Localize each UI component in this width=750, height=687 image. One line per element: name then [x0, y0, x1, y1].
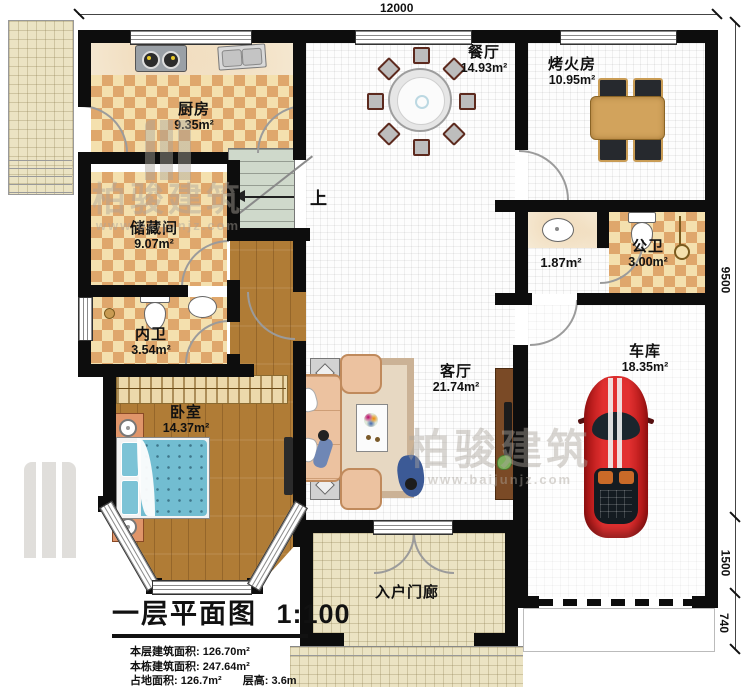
watermark-logo-icon: [24, 462, 76, 558]
plan-scale: 1:100: [277, 599, 351, 629]
dining-window: [355, 30, 472, 45]
room-name: 厨房: [174, 101, 214, 118]
info-label: 本层建筑面积: [130, 646, 196, 658]
wall-innerbath-right-a: [227, 280, 240, 322]
table-items: [366, 435, 371, 440]
label-kitchen: 厨房 9.35m²: [174, 101, 214, 132]
coffee-table: [356, 404, 388, 452]
dim-right-740: 740: [717, 613, 731, 633]
room-area: 1.87m²: [540, 256, 581, 270]
room-area: 21.74m²: [433, 380, 480, 394]
wall-kitchen-right: [293, 30, 306, 160]
plan-title-row: 一层平面图 1:100: [112, 592, 342, 631]
car-stripe: [608, 378, 613, 468]
bedroom-tv: [284, 437, 293, 495]
room-area: 9.35m²: [174, 118, 214, 132]
dining-chair: [413, 139, 430, 156]
burner: [142, 51, 160, 69]
wall-garage-stub-right: [692, 596, 718, 608]
car-seat: [619, 471, 634, 484]
car-engine-lines: [600, 490, 632, 518]
inner-bath-window: [78, 297, 93, 341]
label-living: 客厅 21.74m²: [433, 363, 480, 394]
plant: [497, 455, 512, 470]
car-engine-cover: [594, 468, 638, 524]
room-name: 储藏间: [130, 220, 178, 237]
info-value: 3.6m: [272, 675, 297, 687]
dining-chair: [459, 93, 476, 110]
burner: [162, 51, 180, 69]
wall-porch-stub-right: [474, 633, 518, 646]
flowers: [364, 413, 378, 427]
wall-left-mid: [78, 152, 91, 297]
wall-row-bottom-a: [495, 293, 532, 305]
armchair: [340, 468, 382, 510]
fire-room-window: [560, 30, 677, 45]
alcove-sink-drain: [555, 227, 559, 231]
wall-storage-bottom: [78, 285, 188, 297]
dining-table-center: [415, 95, 429, 109]
room-name: 客厅: [433, 363, 480, 380]
wall-living-south-a: [306, 520, 374, 533]
dining-table-group: [388, 68, 452, 132]
stairs-up-label: 上: [310, 184, 327, 209]
car-windshield: [592, 412, 640, 440]
wall-living-south-b: [451, 520, 513, 533]
info-value: 126.70m²: [203, 646, 250, 658]
label-bedroom: 卧室 14.37m²: [163, 404, 210, 435]
info-lines: 本层建筑面积: 126.70m² 本栋建筑面积: 247.64m² 占地面积: …: [130, 645, 342, 687]
info-value: 247.64m²: [203, 661, 250, 673]
room-name: 餐厅: [461, 44, 508, 61]
wall-kitchen-bottom: [78, 152, 228, 164]
car-seat: [598, 471, 613, 484]
room-area: 3.00m²: [628, 255, 668, 269]
sink-basin: [221, 49, 242, 67]
wall-left-upper: [78, 30, 91, 107]
wall-porch-right: [505, 533, 518, 635]
floor-plan: 上: [0, 0, 750, 687]
label-storage: 储藏间 9.07m²: [130, 220, 178, 251]
wall-bedroom-left: [103, 377, 116, 505]
label-wash-alcove: 1.87m²: [540, 256, 581, 270]
info-label: 层高: [243, 675, 265, 687]
garage-apron: [523, 608, 715, 652]
room-name: 卧室: [163, 404, 210, 421]
armchair: [340, 354, 382, 394]
title-block: 一层平面图 1:100 本层建筑面积: 126.70m² 本栋建筑面积: 247…: [112, 592, 342, 687]
room-area: 14.93m²: [461, 61, 508, 75]
room-area: 10.95m²: [548, 73, 596, 87]
table-items: [375, 437, 380, 442]
room-area: 14.37m²: [163, 421, 210, 435]
terrace-steps: [8, 160, 72, 193]
label-dining: 餐厅 14.93m²: [461, 44, 508, 75]
car-stripe: [617, 378, 622, 468]
entry-door-opening: [373, 520, 453, 535]
info-row: 本栋建筑面积: 247.64m²: [130, 660, 342, 675]
wall-innerbath-bottom: [78, 364, 254, 377]
room-name: 车库: [622, 343, 669, 360]
info-value: 126.7m²: [181, 675, 222, 687]
person-head: [318, 430, 329, 441]
watermark-logo: [24, 462, 88, 558]
room-name: 烤火房: [548, 56, 596, 73]
wall-dining-fire: [515, 30, 528, 150]
room-area: 9.07m²: [130, 237, 178, 251]
burner-flame: [171, 56, 175, 60]
label-inner-bath: 内卫 3.54m²: [131, 326, 171, 357]
inner-bath-sink: [188, 296, 217, 318]
kitchen-sink: [217, 43, 267, 70]
shower-hose: [679, 216, 681, 246]
info-row: 占地面积: 126.7m² 层高: 3.6m: [130, 674, 342, 687]
wardrobe-rod: [116, 388, 286, 389]
car: [578, 376, 654, 540]
room-name: 入户门廊: [375, 584, 439, 601]
pillow: [121, 480, 139, 515]
dim-top: 12000: [380, 1, 413, 15]
wall-bedroom-right-a: [293, 241, 306, 292]
wall-alcove-left: [515, 210, 528, 293]
room-name: 内卫: [131, 326, 171, 343]
plan-title: 一层平面图: [112, 599, 257, 629]
garage-door-dashed: [539, 599, 692, 606]
info-label: 占地面积: [130, 675, 174, 687]
room-name: 公卫: [628, 238, 668, 255]
label-fire-room: 烤火房 10.95m²: [548, 56, 596, 87]
wardrobe: [116, 375, 288, 404]
burner-flame: [147, 56, 151, 60]
sink-basin: [241, 48, 262, 66]
dining-chair: [367, 93, 384, 110]
room-area: 3.54m²: [131, 343, 171, 357]
lamp-center: [126, 426, 130, 430]
dim-right-1500: 1500: [718, 550, 732, 577]
dining-chair: [413, 47, 430, 64]
bay-post: [293, 533, 311, 547]
wall-storage-right: [227, 160, 240, 240]
info-row: 本层建筑面积: 126.70m²: [130, 645, 342, 660]
floor-drain: [104, 308, 115, 319]
wall-right: [705, 30, 718, 608]
dim-line-right: [735, 22, 736, 650]
shower-head: [674, 244, 690, 260]
fire-room-table: [590, 96, 665, 140]
bed: [116, 437, 210, 519]
dim-right-9500: 9500: [718, 267, 732, 294]
stove: [135, 45, 187, 72]
wall-alcove-pub: [597, 210, 609, 248]
stairs-arrow-line: [244, 196, 294, 198]
kitchen-window: [130, 30, 252, 45]
room-area: 18.35m²: [622, 360, 669, 374]
info-label: 本栋建筑面积: [130, 661, 196, 673]
person-head: [405, 478, 417, 490]
title-underline: [112, 634, 308, 638]
wall-row-bottom-b: [577, 293, 718, 305]
label-garage: 车库 18.35m²: [622, 343, 669, 374]
label-public-bath: 公卫 3.00m²: [628, 238, 668, 269]
label-porch: 入户门廊: [375, 584, 439, 601]
